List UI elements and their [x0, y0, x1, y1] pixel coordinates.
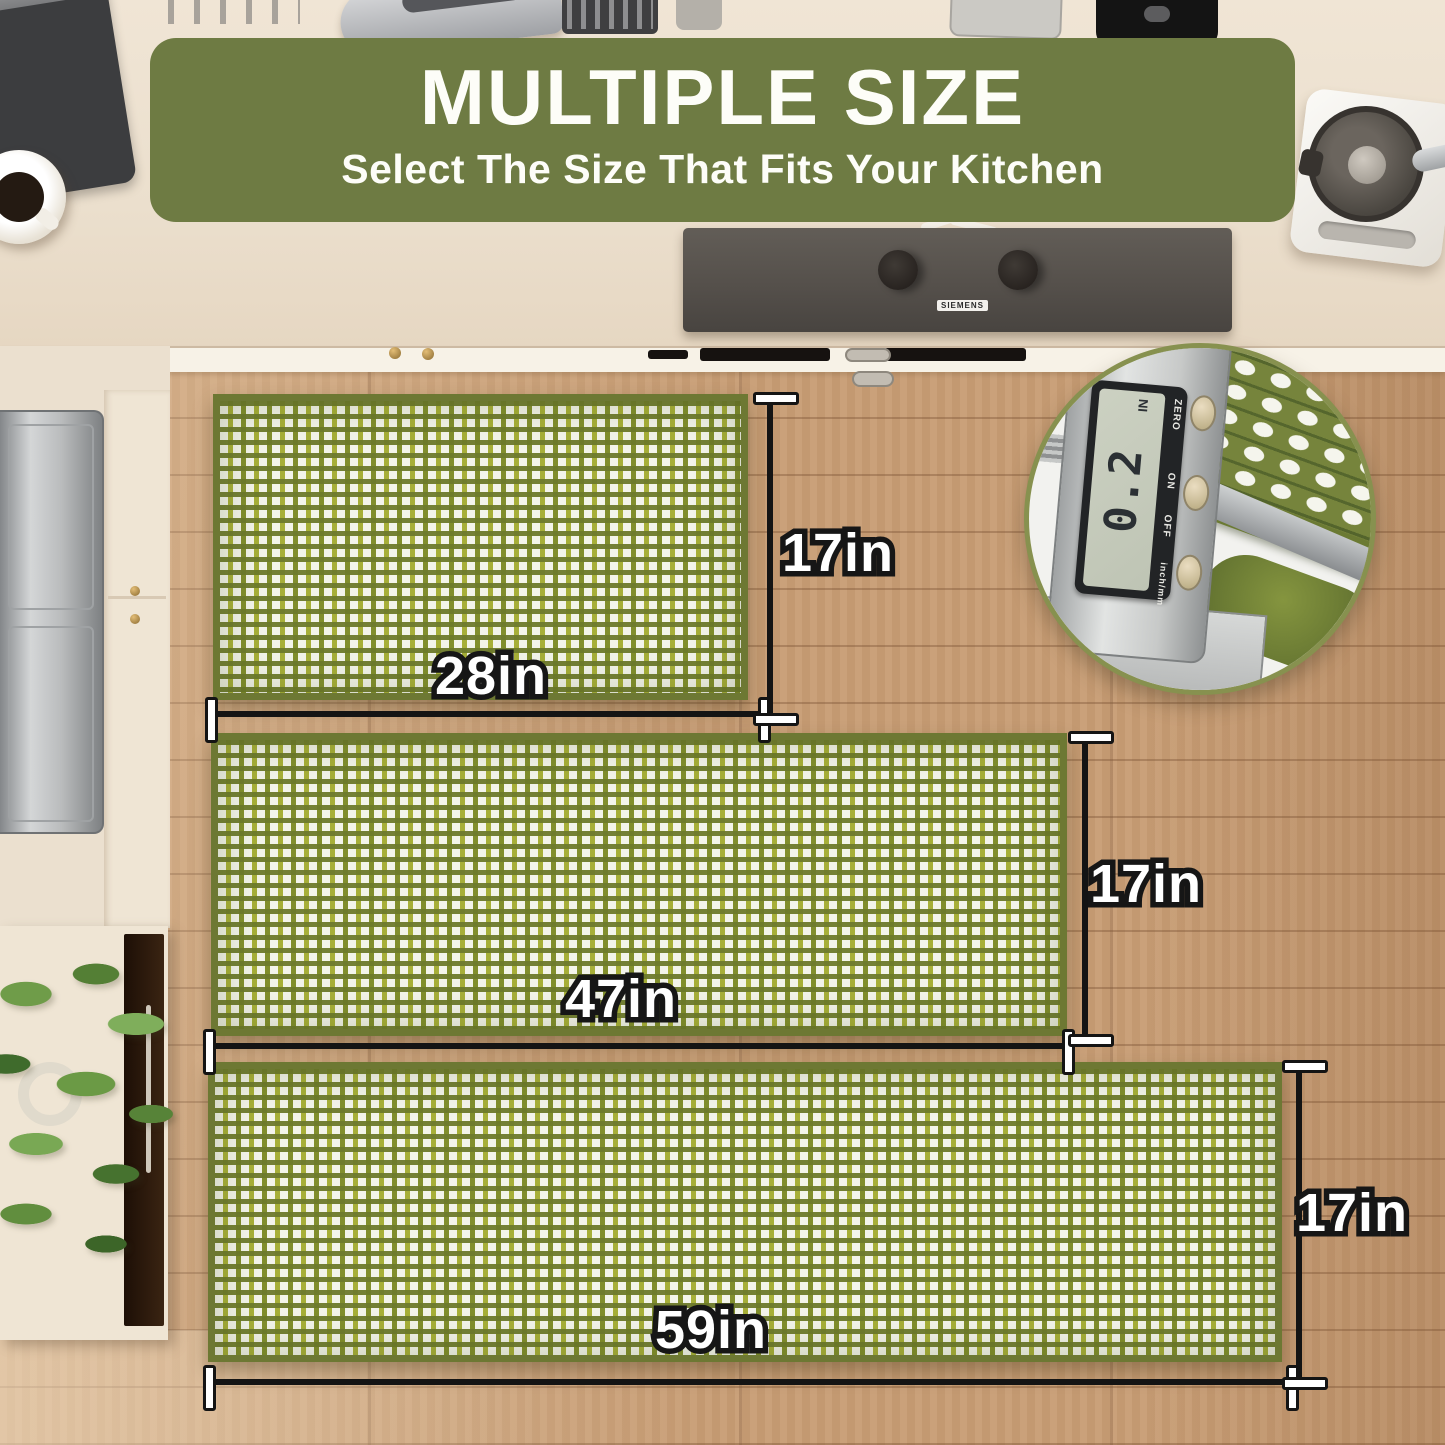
- cabinet-knob: [130, 586, 140, 596]
- height-label-medium: 17in: [1090, 853, 1202, 915]
- banner-title: MULTIPLE SIZE: [150, 58, 1295, 136]
- height-label-small: 17in: [782, 522, 894, 584]
- width-dimension-line-medium: [211, 1043, 1067, 1049]
- caliper-mode-label: inch/mm: [1155, 562, 1169, 607]
- caliper-lcd: 0.2: [1083, 388, 1166, 591]
- width-dimension-line-small: [213, 711, 763, 717]
- cabinet-vent-slot: [700, 348, 830, 361]
- cooktop-knob: [878, 250, 918, 290]
- width-label-small: 28in: [435, 645, 547, 707]
- caliper-button-zero: [1189, 394, 1218, 432]
- caliper-zero-label: ZERO: [1170, 399, 1184, 432]
- stainless-appliance: [0, 410, 104, 834]
- drawer-pull: [845, 348, 891, 362]
- cooktop-brand-label: SIEMENS: [937, 300, 988, 311]
- height-dimension-line-small: [767, 400, 773, 718]
- trivet-grille: [562, 0, 658, 34]
- canister: [949, 0, 1063, 40]
- headline-banner: MULTIPLE SIZE Select The Size That Fits …: [150, 38, 1295, 222]
- width-dimension-line-long: [211, 1379, 1291, 1385]
- cabinet-knob: [389, 347, 401, 359]
- cabinet-vent-slot: [648, 350, 688, 359]
- caliper-off-label: OFF: [1160, 514, 1173, 538]
- height-dimension-line-medium: [1082, 739, 1088, 1039]
- thickness-inset-circle: 0.2 IN ZERO ON OFF inch/mm: [1024, 343, 1376, 695]
- cabinet-vent-slot: [884, 348, 1026, 361]
- height-label-long: 17in: [1296, 1182, 1408, 1244]
- cream-cabinet-doors: [104, 390, 170, 928]
- product-size-infographic: SIEMENS MULTIPLE SIZE Select The Size Th…: [0, 0, 1445, 1445]
- banner-subtitle: Select The Size That Fits Your Kitchen: [150, 146, 1295, 193]
- thickness-value: 0.2: [1095, 445, 1153, 535]
- caliper-lcd-frame: 0.2 IN ZERO ON OFF inch/mm: [1074, 380, 1188, 602]
- caliper-on-label: ON: [1164, 472, 1176, 490]
- utensil-rack: [168, 0, 300, 24]
- potted-plant: [0, 944, 216, 1274]
- cooktop: [683, 228, 1232, 332]
- caliper-button-off: [1175, 554, 1204, 592]
- width-label-medium: 47in: [565, 968, 677, 1030]
- drawer-pull: [852, 371, 894, 387]
- thickness-unit: IN: [1135, 398, 1151, 412]
- kettle-lid-cap: [1348, 146, 1386, 184]
- cabinet-knob: [422, 348, 434, 360]
- cabinet-knob: [130, 614, 140, 624]
- digital-caliper: 0.2 IN ZERO ON OFF inch/mm: [1045, 343, 1233, 664]
- small-cup: [676, 0, 722, 30]
- cooktop-knob: [998, 250, 1038, 290]
- caliper-button-on: [1182, 474, 1211, 512]
- width-label-long: 59in: [655, 1299, 767, 1361]
